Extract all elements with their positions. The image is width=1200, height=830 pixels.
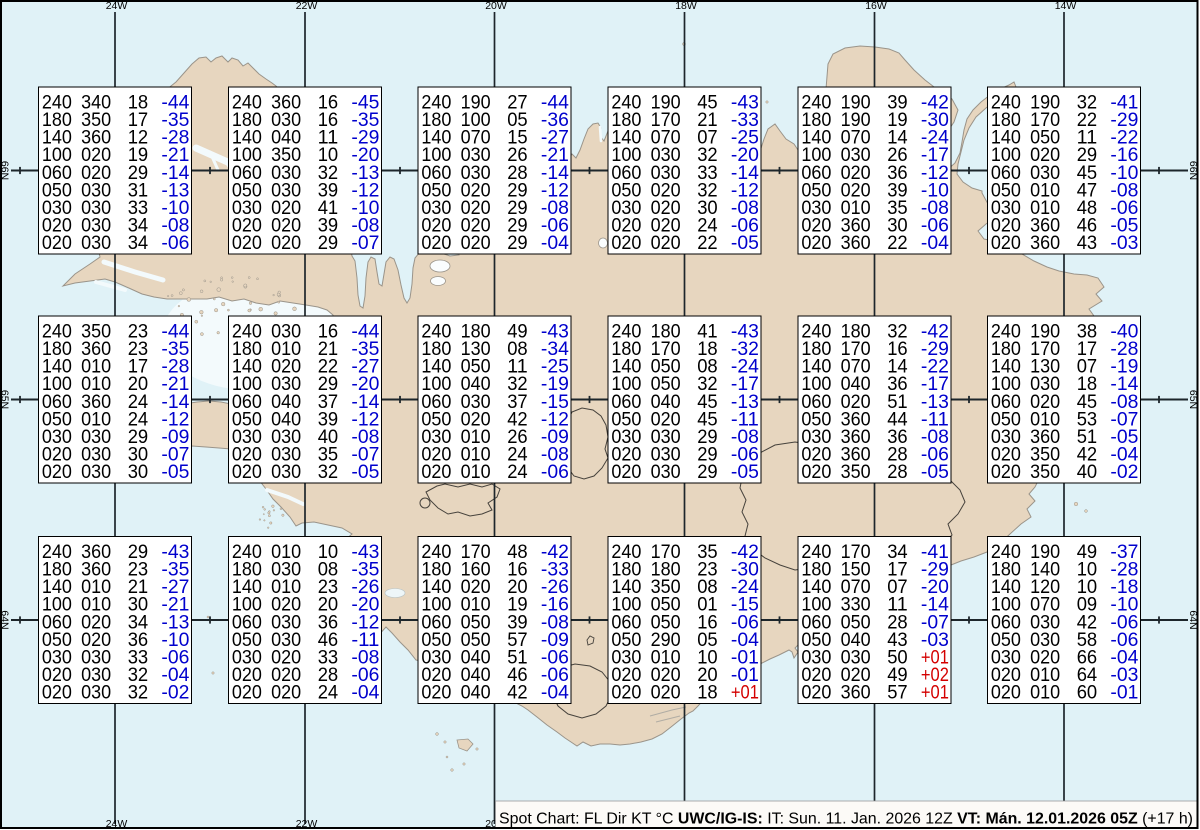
svg-text:-05: -05 [351,461,379,483]
svg-text:020: 020 [461,232,491,254]
svg-text:020: 020 [232,682,262,704]
svg-text:030: 030 [81,682,111,704]
svg-text:22: 22 [887,232,908,254]
svg-text:22: 22 [697,232,718,254]
svg-text:010: 010 [1030,682,1060,704]
svg-text:350: 350 [1030,461,1060,483]
svg-text:350: 350 [841,461,871,483]
svg-text:30: 30 [128,461,149,483]
svg-text:020: 020 [421,461,451,483]
svg-text:34: 34 [128,232,149,254]
svg-text:-06: -06 [161,232,189,254]
svg-text:360: 360 [841,232,871,254]
svg-text:-02: -02 [1110,461,1138,483]
svg-text:-03: -03 [1110,232,1138,254]
svg-text:29: 29 [318,232,339,254]
svg-text:020: 020 [801,682,831,704]
svg-text:020: 020 [611,461,641,483]
svg-text:-04: -04 [351,682,379,704]
svg-text:-05: -05 [921,461,949,483]
svg-text:-06: -06 [541,461,569,483]
svg-text:020: 020 [651,232,681,254]
svg-text:29: 29 [507,232,528,254]
svg-text:020: 020 [991,682,1021,704]
svg-text:18: 18 [697,682,718,704]
svg-text:020: 020 [801,461,831,483]
svg-text:+01: +01 [731,682,759,704]
svg-text:29: 29 [697,461,718,483]
svg-text:60: 60 [1077,682,1098,704]
svg-text:020: 020 [651,682,681,704]
svg-text:32: 32 [318,461,339,483]
svg-text:-04: -04 [541,232,569,254]
svg-text:24: 24 [507,461,528,483]
svg-text:28: 28 [887,461,908,483]
svg-text:030: 030 [81,461,111,483]
svg-text:360: 360 [841,682,871,704]
svg-text:57: 57 [887,682,908,704]
svg-text:43: 43 [1077,232,1098,254]
svg-text:020: 020 [42,461,72,483]
svg-text:020: 020 [232,461,262,483]
svg-text:-04: -04 [921,232,949,254]
svg-text:020: 020 [801,232,831,254]
svg-text:-05: -05 [161,461,189,483]
svg-text:-02: -02 [161,682,189,704]
svg-text:020: 020 [991,461,1021,483]
svg-text:040: 040 [461,682,491,704]
svg-text:020: 020 [42,232,72,254]
svg-text:42: 42 [507,682,528,704]
svg-text:020: 020 [232,232,262,254]
svg-text:-05: -05 [731,232,759,254]
svg-text:020: 020 [42,682,72,704]
svg-text:020: 020 [421,682,451,704]
svg-text:-07: -07 [351,232,379,254]
svg-text:030: 030 [271,461,301,483]
svg-text:+01: +01 [921,682,949,704]
svg-text:32: 32 [128,682,149,704]
svg-text:-04: -04 [541,682,569,704]
svg-text:020: 020 [421,232,451,254]
svg-text:020: 020 [611,232,641,254]
svg-text:020: 020 [611,682,641,704]
svg-text:010: 010 [461,461,491,483]
svg-text:030: 030 [81,232,111,254]
svg-text:-01: -01 [1110,682,1138,704]
svg-text:40: 40 [1077,461,1098,483]
svg-text:360: 360 [1030,232,1060,254]
svg-text:020: 020 [991,232,1021,254]
svg-text:020: 020 [271,232,301,254]
svg-text:24: 24 [318,682,339,704]
svg-text:030: 030 [651,461,681,483]
svg-text:020: 020 [271,682,301,704]
svg-text:-05: -05 [731,461,759,483]
svg-text:Spot Chart: FL Dir KT °C UWC/I: Spot Chart: FL Dir KT °C UWC/IG-IS: IT: … [499,810,1193,828]
